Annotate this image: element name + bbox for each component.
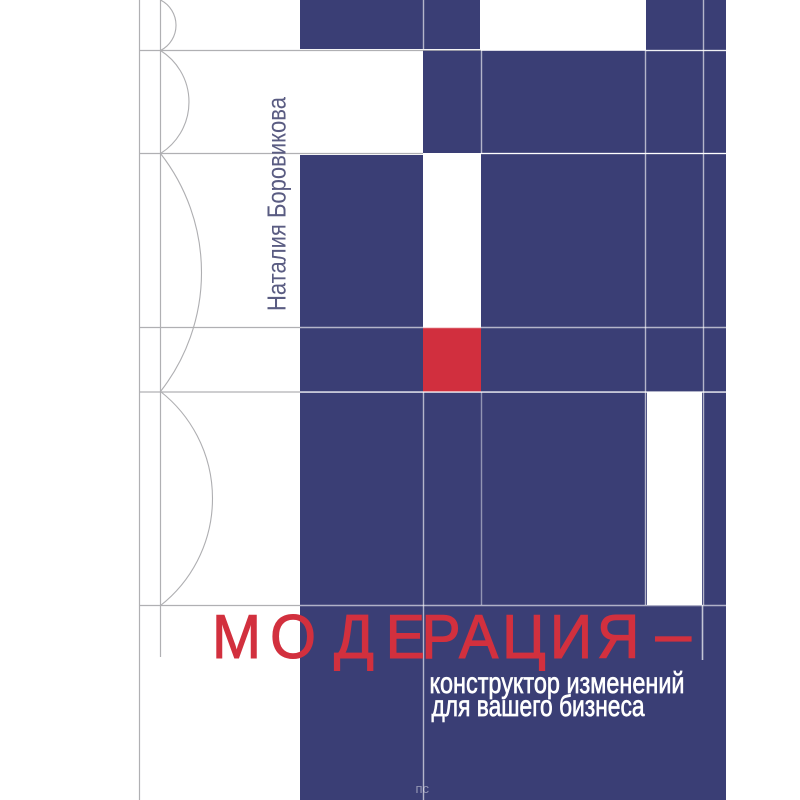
- svg-text:пс: пс: [416, 781, 430, 796]
- svg-text:для вашего бизнеса: для вашего бизнеса: [432, 690, 645, 723]
- svg-text:МОДЕРАЦИЯ: МОДЕРАЦИЯ: [212, 602, 639, 672]
- svg-text:Наталия Боровикова: Наталия Боровикова: [262, 97, 292, 311]
